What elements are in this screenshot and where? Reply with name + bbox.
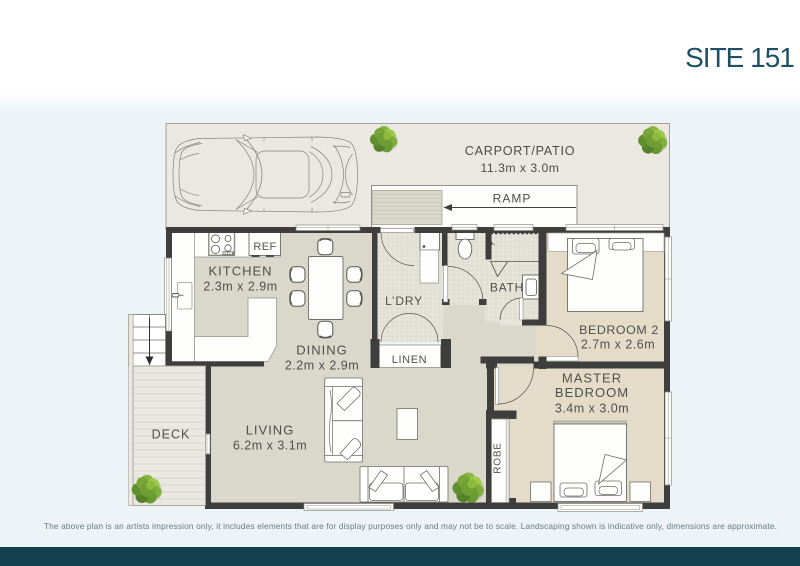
svg-text:DECK: DECK	[152, 428, 191, 442]
svg-text:REF: REF	[253, 241, 276, 253]
svg-text:LINEN: LINEN	[392, 354, 427, 366]
svg-text:11.3m x 3.0m: 11.3m x 3.0m	[481, 161, 560, 175]
svg-text:KITCHEN: KITCHEN	[208, 264, 272, 279]
svg-text:DINING: DINING	[296, 343, 348, 358]
svg-text:RAMP: RAMP	[493, 192, 532, 206]
svg-text:SITE 151: SITE 151	[685, 42, 794, 73]
svg-text:LIVING: LIVING	[246, 423, 295, 438]
svg-text:2.3m x 2.9m: 2.3m x 2.9m	[203, 280, 277, 294]
svg-text:2.2m x 2.9m: 2.2m x 2.9m	[285, 359, 359, 373]
svg-text:BEDROOM 2: BEDROOM 2	[579, 323, 659, 337]
svg-text:2.7m x 2.6m: 2.7m x 2.6m	[581, 338, 655, 352]
svg-text:L’DRY: L’DRY	[385, 294, 423, 308]
svg-text:CARPORT/PATIO: CARPORT/PATIO	[465, 144, 576, 158]
svg-text:ROBE: ROBE	[493, 442, 504, 474]
svg-text:6.2m x 3.1m: 6.2m x 3.1m	[233, 439, 307, 453]
svg-text:The above plan is an artists i: The above plan is an artists impression …	[44, 521, 777, 531]
svg-text:3.4m x 3.0m: 3.4m x 3.0m	[555, 402, 629, 416]
svg-text:BEDROOM: BEDROOM	[555, 385, 629, 400]
svg-text:BATH: BATH	[490, 281, 524, 295]
svg-text:MASTER: MASTER	[562, 371, 622, 386]
